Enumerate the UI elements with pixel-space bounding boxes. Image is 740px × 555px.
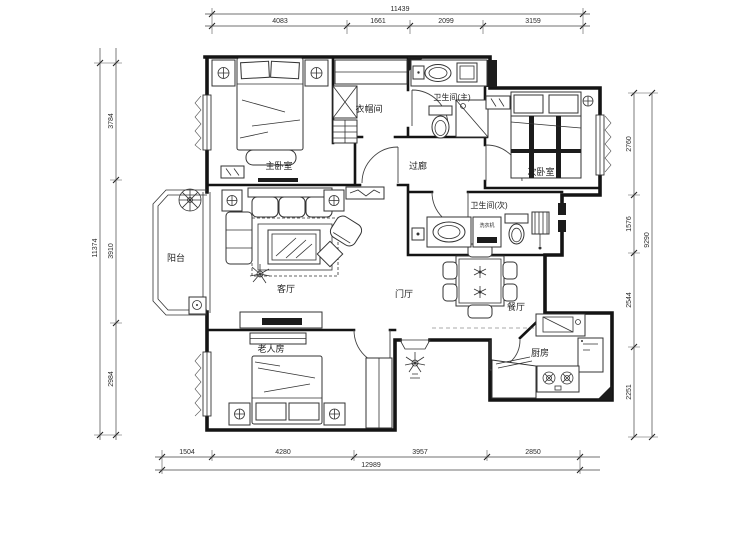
dim-right-seg-1: 2760 [626, 136, 633, 152]
ceiling-fan-plant-icon [179, 189, 201, 211]
dim-left-seg-1: 3784 [108, 113, 115, 129]
window-block [558, 203, 566, 215]
stove-icon [537, 366, 579, 392]
room-second-bedroom: 次卧室 [486, 92, 593, 178]
double-bed-icon [252, 356, 322, 424]
shower-icon [456, 100, 488, 137]
dining-table-icon [456, 256, 504, 306]
dim-top-seg-2: 1661 [370, 18, 386, 25]
floor-plan-page: 11439 4083 1661 2099 3159 1504 4280 3957… [0, 0, 740, 555]
dim-top-seg-1: 4083 [272, 18, 288, 25]
window-block [558, 220, 566, 232]
fridge-icon [578, 338, 603, 372]
label-second-bedroom: 次卧室 [527, 166, 554, 177]
ac-unit-icon [486, 96, 510, 109]
dim-left-seg-2: 3910 [108, 243, 115, 259]
tv-cabinet-icon [240, 312, 322, 328]
dimension-bottom: 1504 4280 3957 2850 12989 [155, 449, 600, 474]
label-second-bath: 卫生间(次) [470, 200, 508, 210]
partition-cabinet [346, 187, 384, 199]
room-master-bath: 卫生间(主) [411, 60, 488, 138]
dim-left-seg-3: 2984 [108, 371, 115, 387]
dim-right-seg-4: 2251 [626, 384, 633, 400]
armchair-icon [328, 213, 364, 248]
ac-unit-icon [221, 166, 244, 178]
dim-right-total: 9290 [644, 232, 651, 248]
washing-machine-icon: 洗衣机 [473, 217, 501, 247]
double-bed-icon [511, 92, 581, 178]
dim-bottom-seg-4: 2850 [525, 449, 541, 456]
label-dining-room: 餐厅 [507, 301, 525, 312]
floor-mat [258, 178, 298, 182]
shelf-icon [333, 120, 357, 143]
room-cloakroom: 衣帽间 [333, 60, 407, 143]
label-kitchen: 厨房 [531, 347, 549, 358]
plant-icon [250, 264, 270, 283]
dim-right-seg-2: 1576 [626, 216, 633, 232]
dim-bottom-seg-3: 3957 [412, 449, 428, 456]
double-bed-icon [237, 58, 303, 165]
room-elder: 老人房 [229, 333, 392, 428]
label-cloakroom: 衣帽间 [355, 103, 382, 114]
door-corridor [362, 147, 398, 183]
dim-right-seg-3: 2544 [626, 292, 633, 308]
label-entry-hall: 门厅 [395, 288, 413, 299]
dimension-left: 11374 3784 3910 2984 [92, 48, 122, 440]
label-balcony: 阳台 [167, 252, 185, 263]
label-master-bath: 卫生间(主) [433, 92, 471, 102]
radiator-icon [532, 212, 549, 250]
toilet-icon [429, 106, 452, 138]
entry-door-sill [400, 340, 430, 349]
dim-top-total: 11439 [391, 6, 410, 13]
label-elder-room: 老人房 [257, 343, 284, 354]
room-second-bath: 洗衣机 卫生间(次) [412, 200, 549, 250]
dim-left-total: 11374 [92, 238, 99, 257]
dim-bottom-total: 12989 [361, 462, 381, 469]
chaise [226, 212, 252, 264]
dim-bottom-seg-2: 4280 [275, 449, 291, 456]
label-living-room: 客厅 [277, 283, 295, 294]
room-master-bedroom: 主卧室 [212, 58, 328, 182]
label-master-bedroom: 主卧室 [265, 160, 292, 171]
prep-counter [492, 357, 536, 398]
wall-column [597, 385, 612, 400]
dim-bottom-seg-1: 1504 [179, 449, 195, 456]
dim-top-seg-3: 2099 [438, 18, 454, 25]
room-kitchen: 厨房 [492, 314, 603, 398]
floor-plan-canvas: 11439 4083 1661 2099 3159 1504 4280 3957… [0, 0, 740, 555]
kitchen-sink-icon [536, 314, 585, 336]
toilet-icon [505, 214, 528, 244]
cabinet-icon [333, 86, 357, 118]
dim-top-seg-4: 3159 [525, 18, 541, 25]
coffee-table-icon [268, 230, 320, 264]
entry-plant-icon [405, 352, 425, 378]
dimension-right: 2760 1576 2544 2251 9290 [626, 90, 658, 440]
label-washing-machine: 洗衣机 [479, 222, 494, 229]
wardrobe-icon [366, 358, 392, 428]
dimension-top: 11439 4083 1661 2099 3159 [205, 6, 590, 34]
corner-table [317, 241, 342, 266]
label-corridor: 过廊 [409, 160, 427, 171]
balcony-door-band [203, 192, 210, 313]
